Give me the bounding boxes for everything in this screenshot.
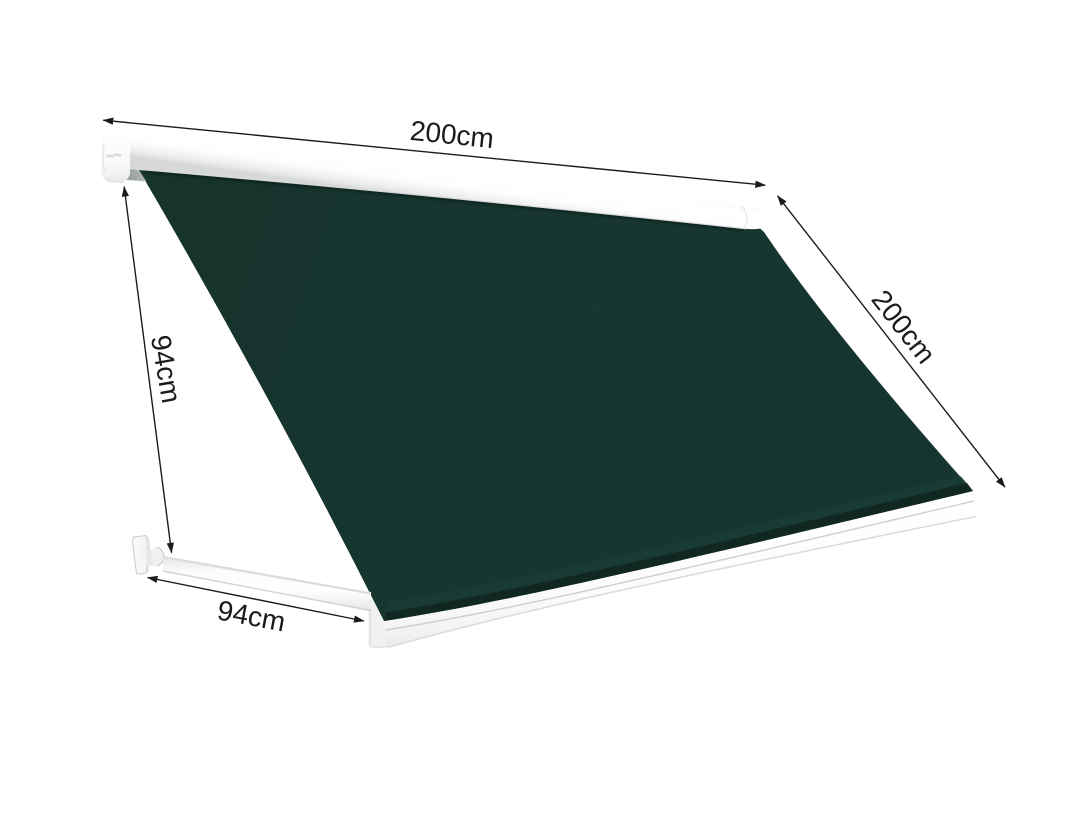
svg-text:200cm: 200cm (409, 115, 496, 154)
svg-text:94cm: 94cm (215, 595, 288, 638)
